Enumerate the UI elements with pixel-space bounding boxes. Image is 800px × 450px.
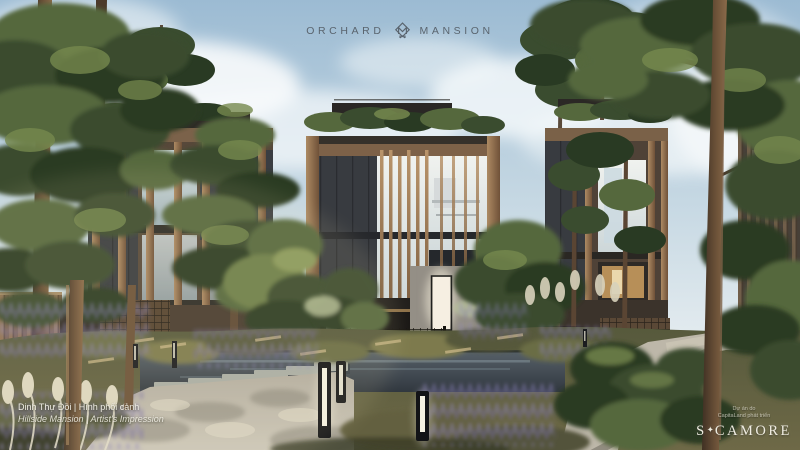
sycamore-logo-prefix: S [696, 423, 707, 439]
brand-word-orchard: ORCHARD [306, 25, 384, 37]
brand-header: ORCHARD MANSION [0, 21, 800, 40]
sycamore-logo-suffix: CAMORE [715, 423, 792, 439]
developer-attribution-line1: Dự án do [688, 406, 800, 413]
bollard-light-3 [416, 391, 429, 441]
developer-attribution-line2: CapitaLand phát triển [688, 413, 800, 420]
caption-block: Dinh Thự Đồi | Hình phối cảnh Hillside M… [18, 402, 164, 425]
sycamore-logo: S✦CAMORE [688, 423, 800, 440]
caption-line-english: Hillside Mansion | Artist's Impression [18, 414, 164, 426]
render-canvas: ORCHARD MANSION Dinh Thự Đồi | Hình phối… [0, 0, 800, 450]
caption-line-vietnamese: Dinh Thự Đồi | Hình phối cảnh [18, 402, 164, 414]
entry-door [433, 277, 450, 329]
sycamore-star-mark-icon: ✦ [707, 425, 715, 435]
brand-word-mansion: MANSION [420, 25, 494, 37]
scene-svg [0, 0, 800, 450]
developer-lockup: Dự án do CapitaLand phát triển S✦CAMORE [688, 406, 800, 440]
om-monogram-icon [394, 21, 411, 40]
